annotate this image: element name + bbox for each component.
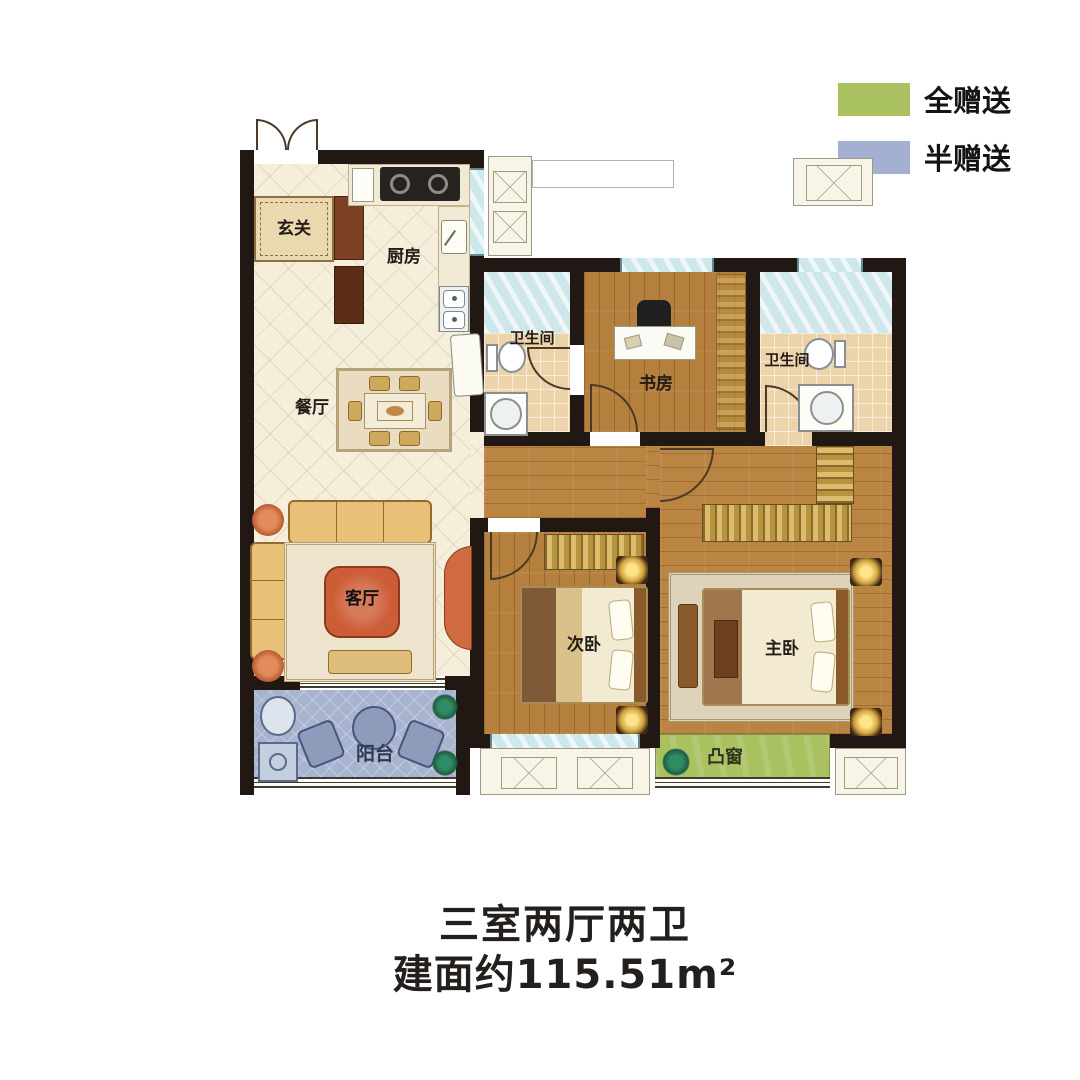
nightstand-lamp-icon xyxy=(850,708,882,736)
bath-master-window xyxy=(797,258,863,272)
dining-table xyxy=(364,393,426,429)
bedroom2-window xyxy=(490,734,640,748)
toilet-tank-icon xyxy=(486,344,498,372)
wall-corridor-north-3 xyxy=(812,432,906,446)
nightstand-lamp-icon xyxy=(850,558,882,586)
wall-balcony-divider-2 xyxy=(445,676,470,690)
plan-area: 建面约115.51m² xyxy=(340,942,790,1000)
plant-icon xyxy=(430,748,460,778)
floor-passage-patch xyxy=(470,432,484,518)
kitchen-appliance xyxy=(352,168,374,202)
floor-corridor xyxy=(484,446,660,518)
study-closet xyxy=(716,274,746,430)
dining-chair xyxy=(369,376,390,391)
ac-platform-top-right xyxy=(793,158,873,206)
bedroom2-label: 次卧 xyxy=(552,636,616,655)
bed-bench xyxy=(678,604,698,688)
kitchen-window xyxy=(470,168,484,256)
dining-chair xyxy=(348,401,362,421)
pillow-icon xyxy=(608,649,634,691)
ac-platform-top xyxy=(488,156,532,256)
stove-icon xyxy=(380,167,460,201)
kitchen-sink-icon xyxy=(439,286,469,332)
study-label: 书房 xyxy=(624,375,688,394)
bay-window-railing xyxy=(655,777,830,788)
dining-chair xyxy=(399,431,420,446)
wall-north-kitchen xyxy=(318,150,484,164)
dining-chair xyxy=(369,431,390,446)
kitchen-label: 厨房 xyxy=(372,248,436,267)
ac-platform-bottom-right xyxy=(835,748,906,795)
floorplan-page: 全赠送 半赠送 xyxy=(0,0,1080,1080)
ac-unit-icon xyxy=(577,757,633,789)
plant-icon xyxy=(660,746,692,778)
ac-unit-icon xyxy=(806,165,862,201)
balcony-label: 阳台 xyxy=(330,744,420,765)
half-gift-label: 半赠送 xyxy=(924,136,1011,178)
toilet-tank-icon xyxy=(834,340,846,368)
washbasin-icon xyxy=(810,391,844,425)
bath-master-lightwell xyxy=(760,272,892,333)
master-label: 主卧 xyxy=(750,640,814,659)
nightstand-lamp-icon xyxy=(616,556,648,584)
dining-chair xyxy=(399,376,420,391)
wall-bedroom2-south-2 xyxy=(640,734,660,748)
fridge-icon xyxy=(450,333,484,397)
wall-bath-main-east-upper xyxy=(570,258,584,345)
wardrobe-master xyxy=(702,504,852,542)
wardrobe-master-side xyxy=(816,446,854,504)
wall-master-south xyxy=(830,734,906,748)
desk-chair-icon xyxy=(637,300,671,328)
wall-west xyxy=(240,150,254,795)
dining-chair xyxy=(428,401,442,421)
entry-door-leaf-right xyxy=(287,119,318,150)
bay-window-label: 凸窗 xyxy=(692,748,758,768)
ac-platform-bottom xyxy=(480,748,650,795)
full-gift-swatch xyxy=(838,83,910,116)
shoe-cabinet xyxy=(334,266,364,324)
plant-icon xyxy=(430,692,460,722)
eave-ledge xyxy=(532,160,674,188)
bath-main-lightwell xyxy=(484,272,570,333)
wall-bedroom2-north-1 xyxy=(470,518,488,532)
wall-bedroom2-north-2 xyxy=(540,518,660,532)
side-table-icon xyxy=(252,650,284,682)
living-bench xyxy=(328,650,412,674)
wall-bedroom2-south-1 xyxy=(470,734,490,748)
washing-machine-icon xyxy=(258,742,298,782)
dining-label: 餐厅 xyxy=(282,399,342,418)
floor-master-door-patch xyxy=(646,446,660,508)
ac-unit-icon xyxy=(493,171,527,203)
ac-unit-icon xyxy=(501,757,557,789)
wall-east xyxy=(892,258,906,748)
balcony-sink-icon xyxy=(260,696,296,736)
bath-master-label: 卫生间 xyxy=(754,352,820,369)
ac-unit-icon xyxy=(844,757,898,789)
study-window xyxy=(620,258,714,272)
ac-unit-icon xyxy=(493,211,527,243)
side-table-icon xyxy=(252,504,284,536)
legend-item-full-gift: 全赠送 xyxy=(838,78,1011,120)
wall-master-west xyxy=(646,508,660,748)
entry-door-leaf-left xyxy=(256,119,287,150)
wall-living-bedroom-divider xyxy=(470,518,484,748)
cutting-board-icon xyxy=(441,220,467,254)
foyer-label: 玄关 xyxy=(262,220,326,239)
pillow-icon xyxy=(608,599,634,641)
pillow-icon xyxy=(810,601,836,643)
sofa-main xyxy=(288,500,432,544)
full-gift-label: 全赠送 xyxy=(924,78,1011,120)
tv-console xyxy=(444,546,472,650)
study-desk xyxy=(614,326,696,360)
living-label: 客厅 xyxy=(324,590,400,609)
washbasin-icon xyxy=(490,398,522,430)
bath-main-label: 卫生间 xyxy=(492,330,572,347)
nightstand-lamp-icon xyxy=(616,706,648,734)
